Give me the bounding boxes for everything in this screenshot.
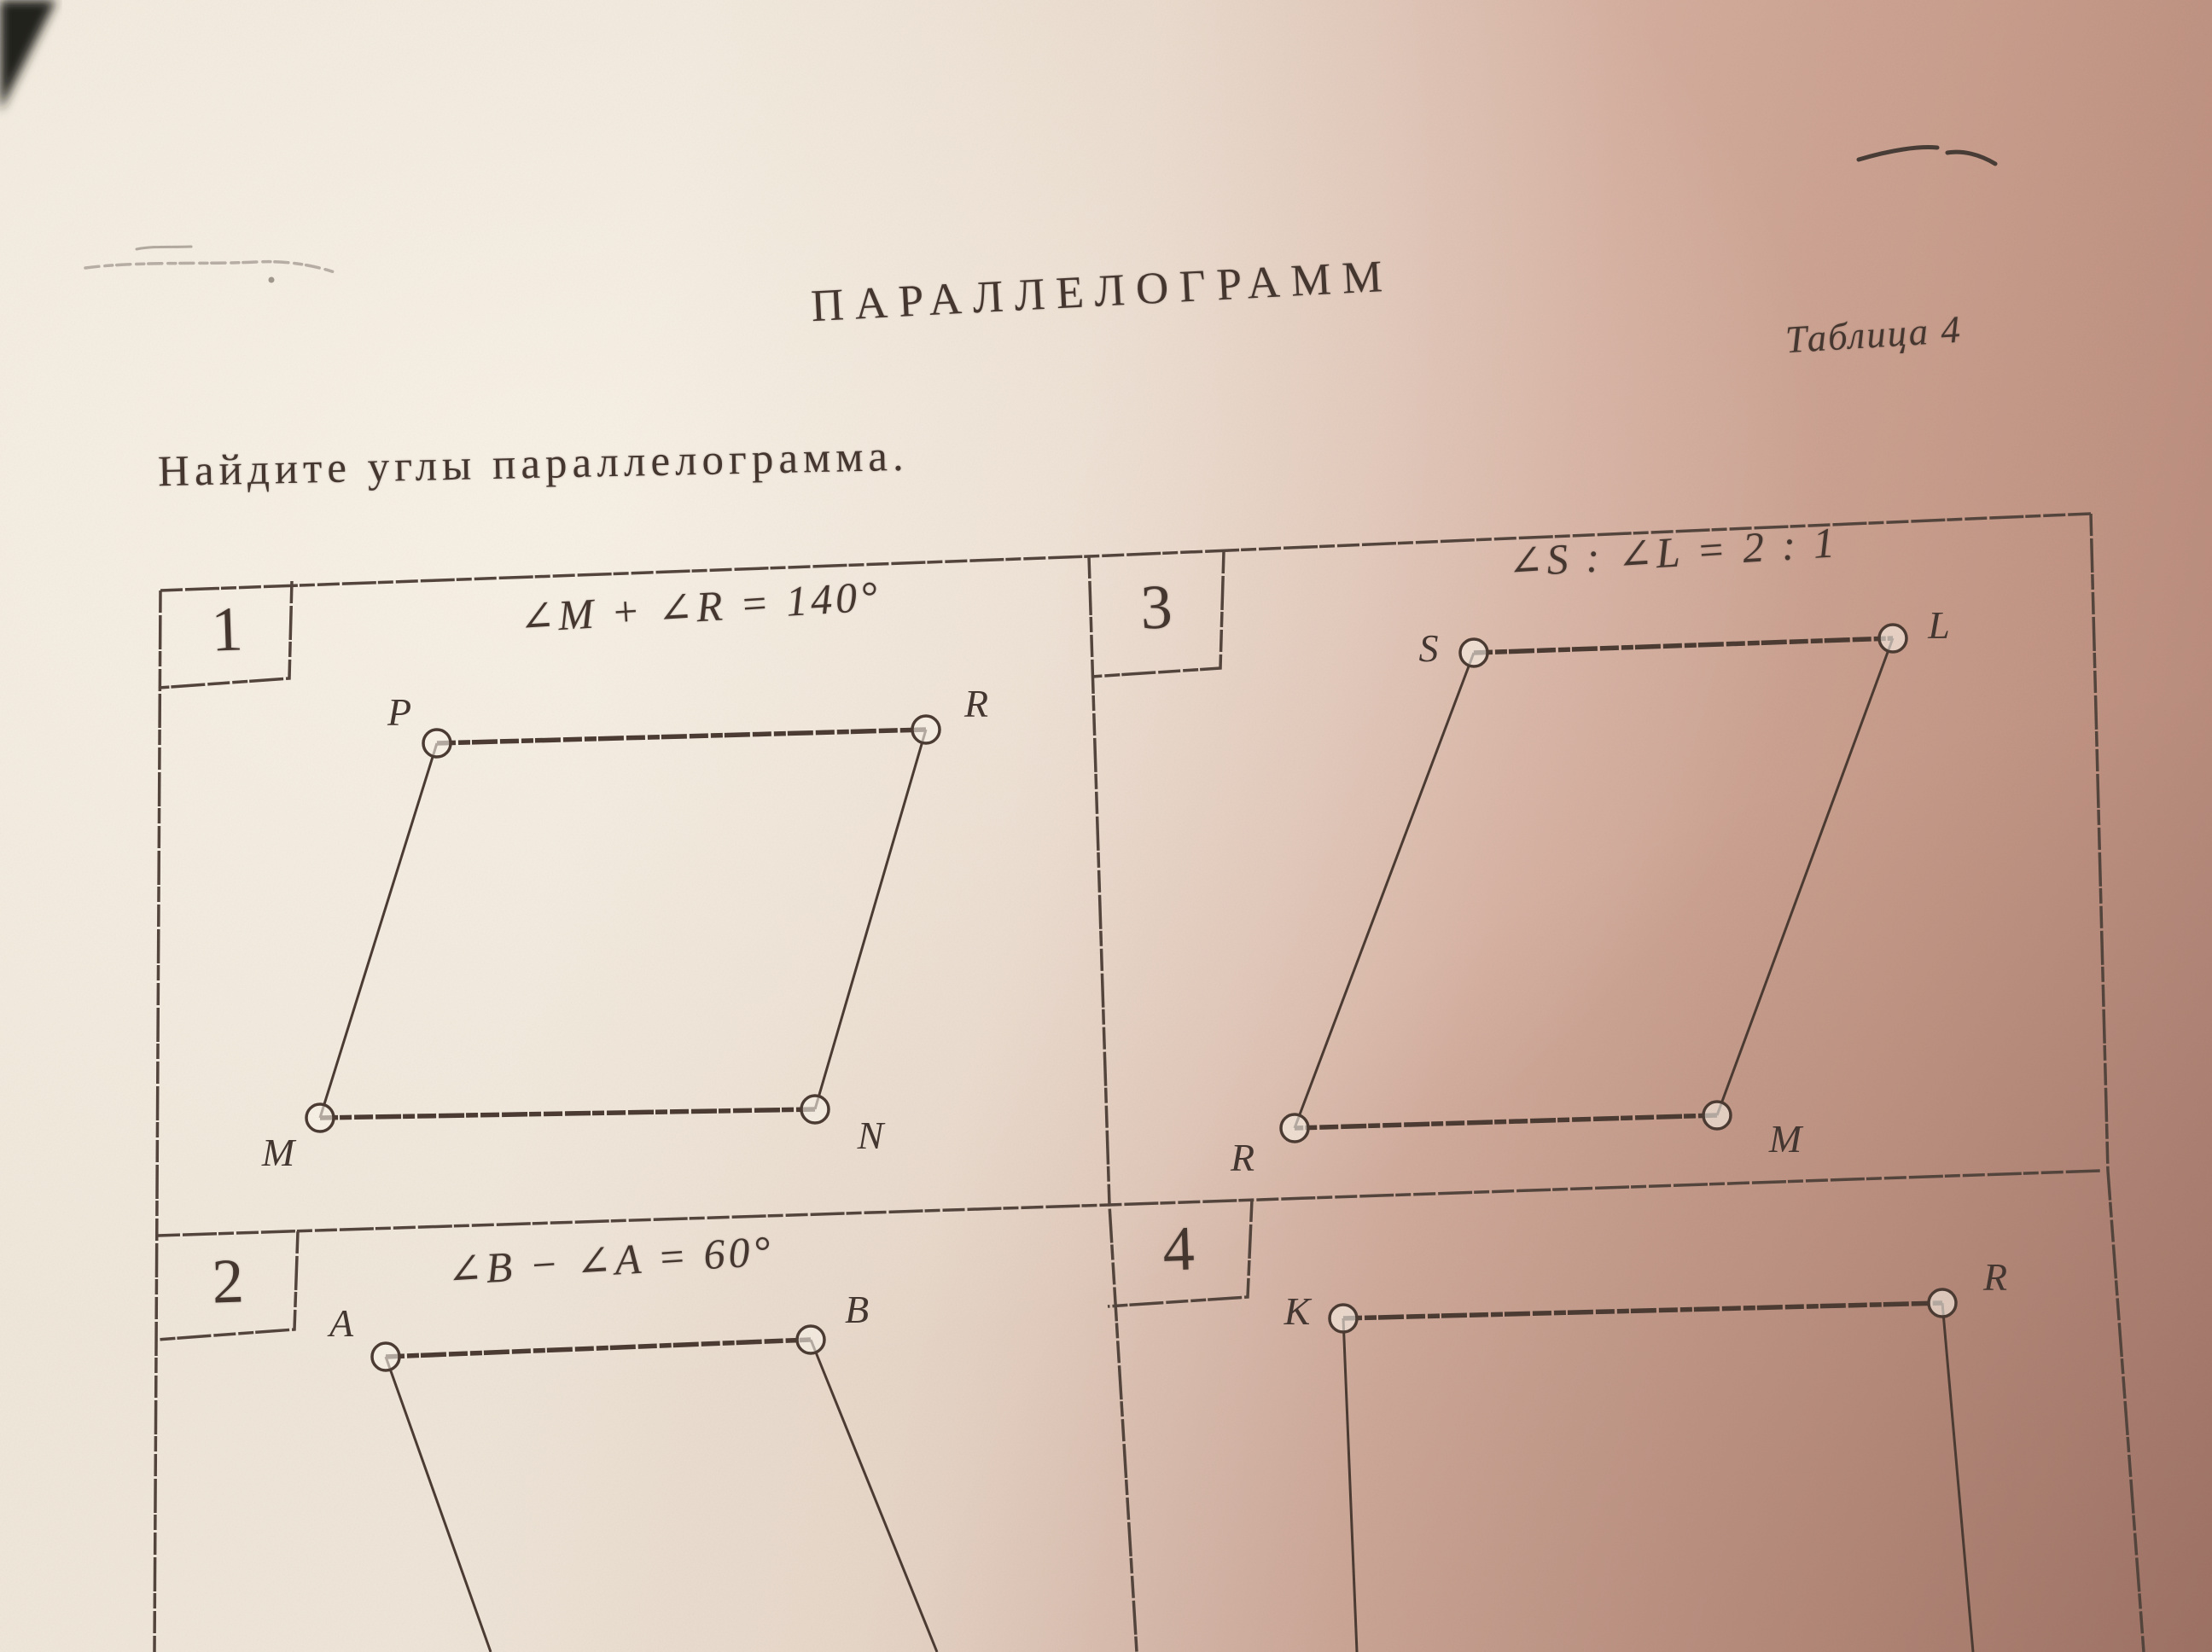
vertex-point-B: [797, 1326, 824, 1353]
photo-corner-shadow: [0, 0, 56, 111]
vertex-label: B: [845, 1288, 869, 1331]
vertex-label: R: [963, 682, 988, 725]
vertex-label: R: [1982, 1255, 2007, 1299]
vertex-label: P: [387, 690, 411, 734]
side-KR: [1343, 1303, 1942, 1318]
problem-number: 3: [1092, 554, 1220, 660]
table-left-border: [154, 590, 160, 1652]
parallelogram-4: K R: [1284, 1255, 2007, 1652]
side-SL: [1474, 638, 1893, 653]
problem-number: 2: [162, 1236, 293, 1326]
vertex-point-A: [372, 1343, 399, 1370]
side-PR: [437, 730, 926, 743]
side-K-down: [1343, 1318, 1357, 1652]
vertex-point-M: [1703, 1102, 1731, 1129]
side-B-down: [811, 1340, 937, 1652]
vertex-label: A: [327, 1301, 354, 1345]
pencil-scribble-marks: [85, 247, 335, 283]
vertex-point-M: [306, 1104, 334, 1131]
worksheet-table-figure: P R N M S L M R A B: [0, 0, 2212, 1652]
vertex-label: R: [1230, 1136, 1254, 1179]
table-column-divider: [1089, 556, 1137, 1652]
pencil-mark: [137, 247, 191, 249]
photographed-textbook-page: P R N M S L M R A B: [0, 0, 2212, 1652]
vertex-point-P: [423, 730, 451, 757]
table-right-border: [2091, 514, 2144, 1652]
side-R-down: [1942, 1303, 1973, 1652]
vertex-point-R: [912, 716, 940, 743]
problem-number: 4: [1109, 1202, 1248, 1295]
vertex-point-R: [1281, 1114, 1308, 1142]
vertex-label: M: [261, 1131, 297, 1174]
side-RS: [1295, 653, 1474, 1128]
vertex-point-N: [801, 1096, 829, 1123]
side-LM: [1717, 638, 1893, 1115]
vertex-label: M: [1768, 1117, 1804, 1160]
vertex-label: L: [1927, 603, 1950, 647]
vertex-label: S: [1419, 626, 1439, 670]
vertex-point-R: [1929, 1289, 1956, 1317]
vertex-point-S: [1460, 639, 1487, 666]
vertex-label: K: [1284, 1289, 1313, 1333]
pencil-mark: [85, 262, 335, 272]
vertex-label: N: [857, 1114, 886, 1157]
pencil-dot: [269, 277, 275, 283]
vertex-point-L: [1879, 625, 1906, 652]
side-RN: [815, 730, 926, 1109]
side-MP: [320, 743, 437, 1118]
side-MR: [1295, 1115, 1717, 1128]
pen-dash-mark: [1859, 148, 1995, 164]
side-A-down: [386, 1357, 491, 1652]
side-AB: [386, 1340, 811, 1357]
parallelogram-1: P R N M: [261, 682, 988, 1174]
problem-number: 1: [166, 585, 288, 675]
vertex-point-K: [1330, 1305, 1357, 1332]
parallelogram-2: A B: [327, 1288, 937, 1652]
parallelogram-3: S L M R: [1230, 603, 1950, 1179]
side-NM: [320, 1109, 815, 1118]
